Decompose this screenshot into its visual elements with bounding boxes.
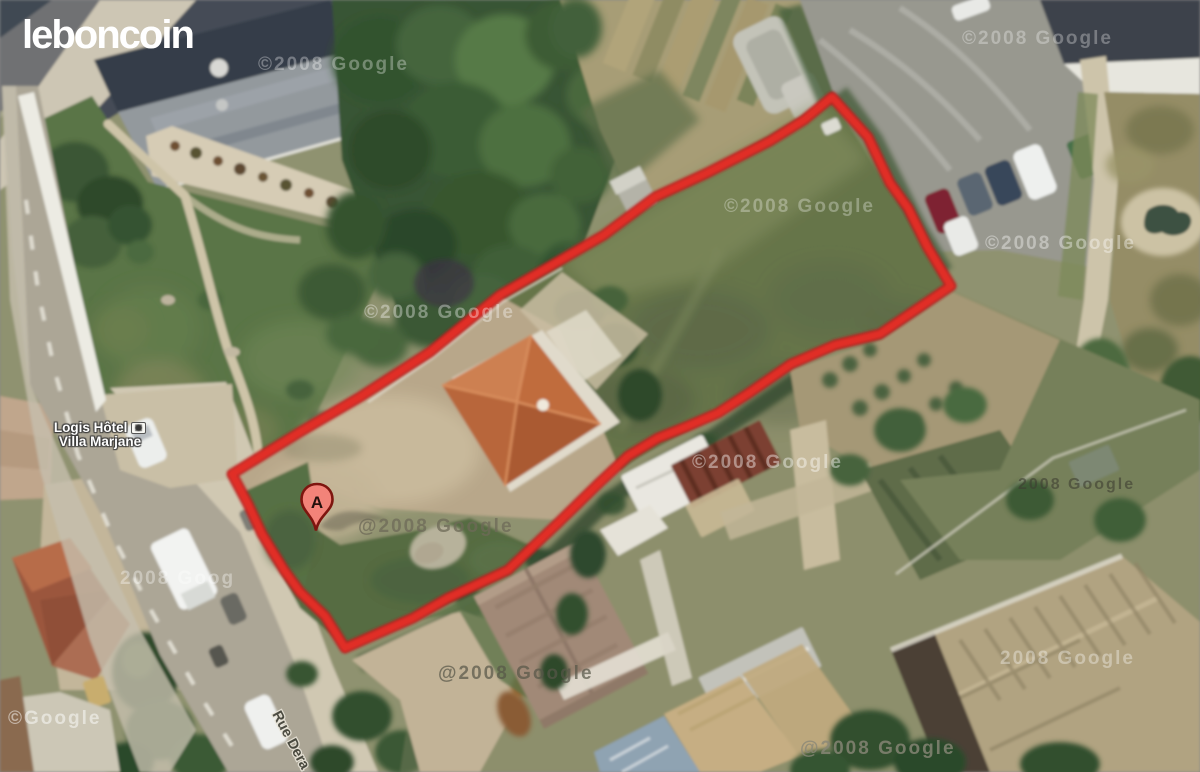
svg-text:A: A	[311, 493, 323, 512]
